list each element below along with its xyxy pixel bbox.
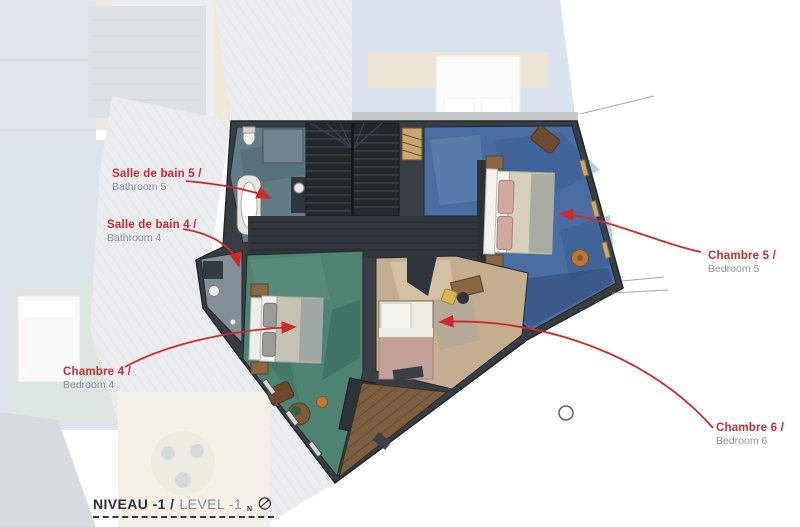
label-bedroom-4-fr: Chambre 4 / — [63, 366, 131, 379]
floorplan-page: Salle de bain 5 / Bathroom 5 Salle de ba… — [0, 0, 800, 527]
column-marker — [559, 406, 573, 420]
north-letter: N — [247, 506, 252, 513]
label-bathroom-5: Salle de bain 5 / Bathroom 5 — [112, 168, 202, 193]
washbasin — [209, 286, 220, 297]
label-bedroom-5-en: Bedroom 5 — [708, 263, 776, 275]
level-title-fr: NIVEAU -1 / — [93, 496, 174, 512]
label-bedroom-4-en: Bedroom 4 — [63, 379, 131, 391]
vanity — [291, 177, 308, 213]
hall-wardrobe — [402, 128, 422, 160]
bedroom-6-bed — [379, 301, 433, 381]
level-title-en: LEVEL -1 — [179, 496, 242, 512]
cabinet — [203, 261, 223, 279]
staircase — [306, 123, 399, 216]
label-bedroom-6-fr: Chambre 6 / — [716, 422, 784, 435]
label-bedroom-5-fr: Chambre 5 / — [708, 250, 776, 263]
label-bathroom-4-fr: Salle de bain 4 / — [107, 219, 197, 232]
shower — [263, 129, 303, 163]
north-arrow-circle-icon — [257, 496, 272, 511]
level-title: NIVEAU -1 / LEVEL -1 N — [93, 494, 274, 518]
label-bathroom-5-fr: Salle de bain 5 / — [112, 168, 202, 181]
label-bathroom-4: Salle de bain 4 / Bathroom 4 — [107, 219, 197, 244]
bedroom-5-bed — [484, 169, 555, 256]
label-bedroom-6-en: Bedroom 6 — [716, 435, 784, 447]
floorplan-svg — [0, 0, 800, 527]
bedroom-4-pouf — [317, 397, 328, 408]
label-bedroom-6: Chambre 6 / Bedroom 6 — [716, 422, 784, 447]
nightstand — [251, 362, 268, 374]
bedroom-6-chair — [457, 292, 469, 304]
label-bedroom-5: Chambre 5 / Bedroom 5 — [708, 250, 776, 275]
nightstand — [486, 156, 503, 169]
label-bedroom-4: Chambre 4 / Bedroom 4 — [63, 366, 131, 391]
label-bathroom-5-en: Bathroom 5 — [112, 181, 202, 193]
label-bathroom-4-en: Bathroom 4 — [107, 232, 197, 244]
nightstand — [251, 284, 268, 296]
